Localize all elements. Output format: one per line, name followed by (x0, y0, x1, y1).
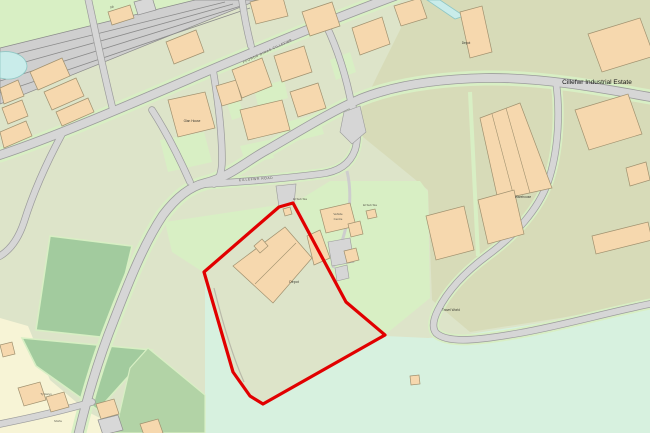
substation (283, 207, 292, 216)
label-depot: Depot (289, 280, 299, 284)
label-estate: Cillefwr Industrial Estate (562, 79, 632, 86)
os-map: Cillefwr Industrial Estate Depot Depot W… (0, 0, 650, 433)
forecourt (335, 265, 349, 281)
label-vehicle-centre-1: Vehicle (333, 212, 343, 216)
substation (366, 209, 377, 219)
hut-in-field (410, 375, 420, 385)
map-canvas: Cillefwr Industrial Estate Depot Depot W… (0, 0, 650, 433)
building (348, 221, 363, 237)
label-house-1: Ty Gwyn (40, 392, 52, 396)
building (344, 248, 359, 263)
label-travel-world: Travel World (442, 308, 460, 312)
label-depot-2: Depot (462, 41, 471, 45)
label-warehouse: Warehouse (515, 195, 531, 199)
label-glan-house: Glan House (184, 119, 201, 123)
label-el-sub-sta-2: El Sub Sta (363, 203, 377, 207)
building (0, 342, 15, 357)
label-el-sub-sta: El Sub Sta (293, 197, 307, 201)
label-vehicle-centre-2: Centre (334, 217, 343, 221)
label-house-2: Morfa (54, 419, 62, 423)
